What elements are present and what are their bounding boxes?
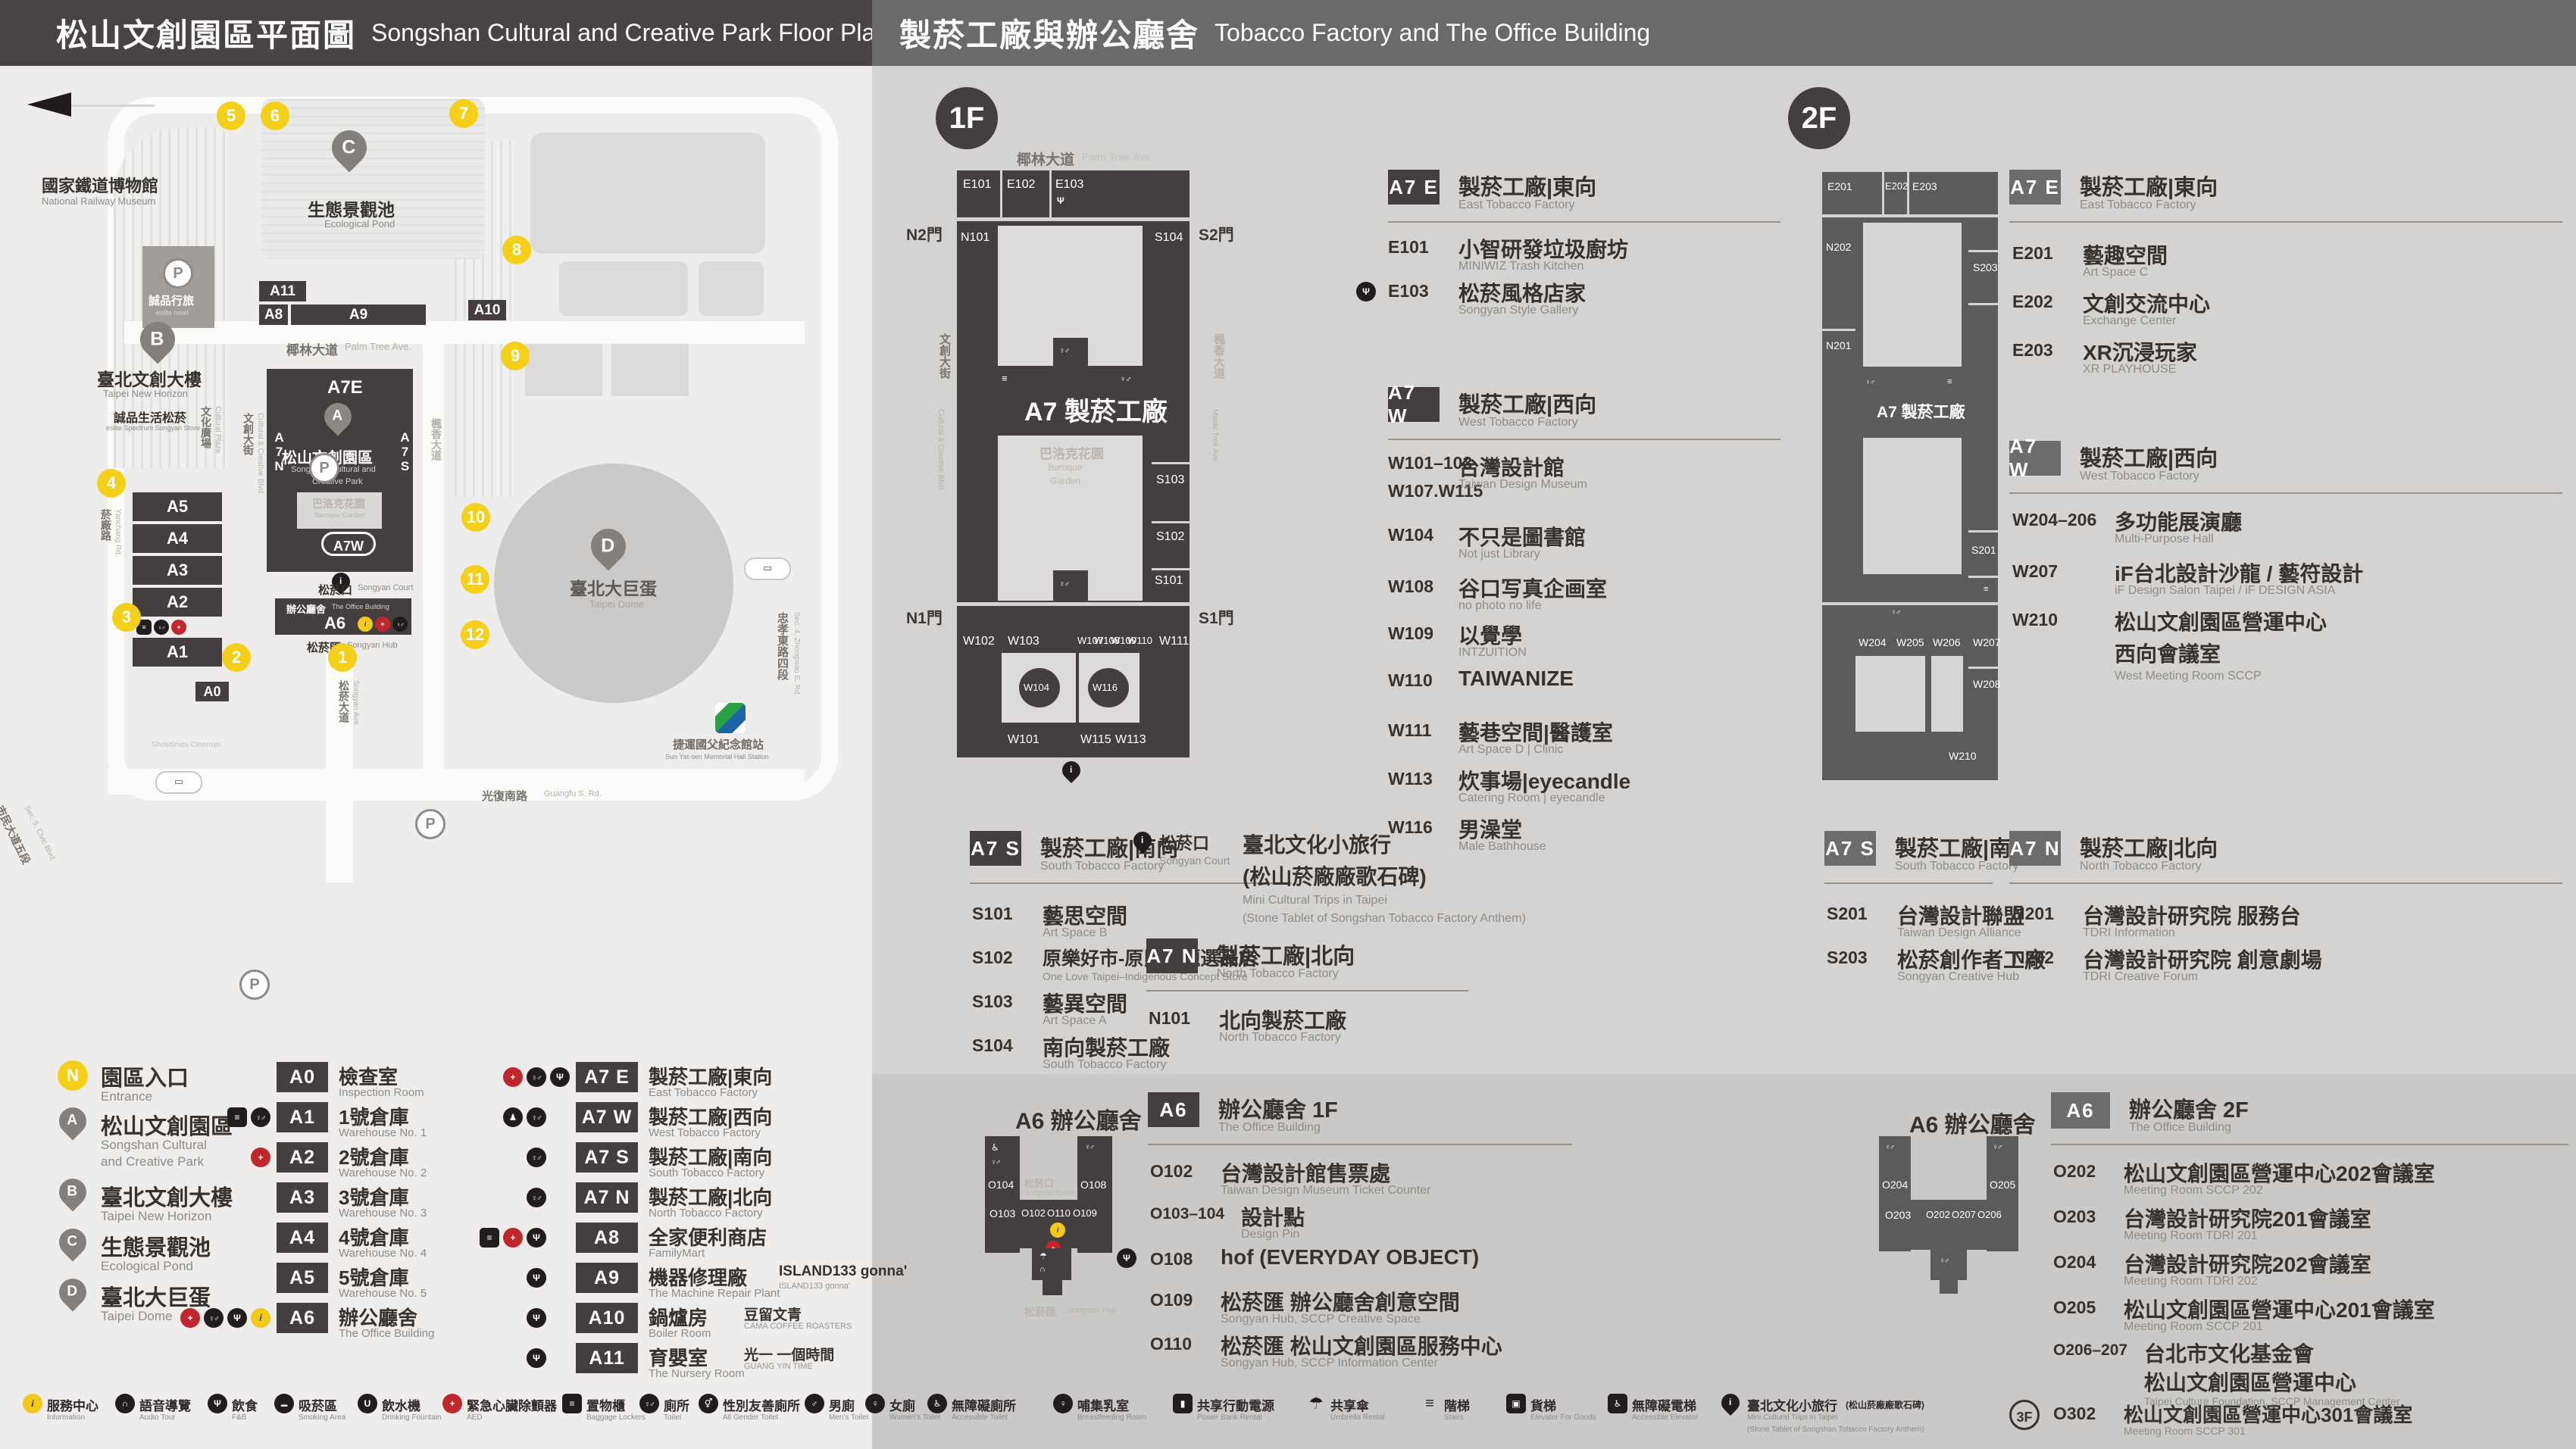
room-label: O110 xyxy=(1047,1207,1071,1219)
umbrella-icon xyxy=(1306,1394,1326,1413)
aed-icon xyxy=(171,620,186,635)
metro-logo xyxy=(715,703,746,733)
toilet-icon xyxy=(639,1394,659,1413)
room-code: O109 xyxy=(1150,1290,1193,1310)
room-code: O204 xyxy=(2053,1252,2096,1273)
facility-label: 廁所 xyxy=(664,1395,689,1414)
legend-a9-brand: ISLAND133 gonna' xyxy=(779,1263,907,1280)
room-name-zh1: 台北市文化基金會 xyxy=(2144,1338,2314,1368)
legend-a7s-en: South Tobacco Factory xyxy=(649,1166,764,1179)
facility-label: 吸菸區 xyxy=(299,1395,337,1414)
entrance-11: 11 xyxy=(461,565,489,594)
eslite-hotel-label-zh: 誠品行旅 xyxy=(148,292,194,308)
pin-a-letter: A xyxy=(324,403,351,429)
room-code: E203 xyxy=(2012,340,2053,361)
f1-street-top-en: Palm Tree Ave. xyxy=(1082,151,1154,163)
zhongxiao-rd-label-en: Sec. 4, Zhongxiao E. Rd. xyxy=(792,612,801,696)
section-code-box: A7 N xyxy=(1146,938,1198,973)
floor3-badge: 3F xyxy=(2009,1400,2040,1430)
facility-label-en: Stairs xyxy=(1444,1413,1464,1422)
parking-icon: P xyxy=(309,453,339,483)
section-title-en: The Office Building xyxy=(1218,1121,1321,1135)
legend-new-horizon-zh: 臺北文創大樓 xyxy=(101,1180,233,1212)
room-label: O202 xyxy=(1926,1209,1950,1220)
room-label: N202 xyxy=(1826,241,1851,253)
room-name-zh: 松山文創園區營運中心202會議室 xyxy=(2124,1157,2435,1188)
room-name-en: Songyan Creative Hub xyxy=(1897,970,2019,984)
facility-label-en: Breastfeeding Room xyxy=(1077,1413,1146,1422)
legend-pin-b-letter: B xyxy=(58,1179,86,1204)
room-code: W204–206 xyxy=(2012,510,2096,530)
section-title-zh: 製菸工廠|北向 xyxy=(2080,831,2218,863)
facility-label: 語音導覽 xyxy=(139,1395,191,1414)
a7s-map-label: A7S xyxy=(397,430,412,473)
showtimes-label-en: Showtimes Cinemas xyxy=(152,741,220,749)
room-label: W101 xyxy=(1008,733,1039,747)
room-label: S101 xyxy=(1155,574,1183,588)
f2-divider xyxy=(1968,303,1998,305)
maple-tree-avenue-road xyxy=(423,337,444,773)
a7n-map-label: A7N xyxy=(271,430,286,473)
room-code: W108 xyxy=(1388,576,1433,597)
f1-a6-stem xyxy=(1032,1248,1071,1280)
room-name-zh: 小智研發垃圾廚坊 xyxy=(1458,233,1628,264)
room-code: O110 xyxy=(1150,1334,1192,1354)
room-label: N201 xyxy=(1826,339,1851,351)
fnb-icon xyxy=(1356,282,1376,301)
cultural-plaza-label-en: Cultural Plaza xyxy=(214,406,222,453)
f1-street-right-zh: 楓香大道 xyxy=(1211,333,1227,379)
room-label: O205 xyxy=(1990,1179,2015,1191)
legend-a5-box: A5 xyxy=(277,1263,328,1293)
facility-label-en: Information xyxy=(47,1413,85,1422)
drinking-fountain-icon xyxy=(358,1394,377,1413)
entrance-3: 3 xyxy=(112,603,141,632)
songyan-hub-label-en: Songyan Hub xyxy=(347,641,398,650)
f1-corridor-line xyxy=(957,217,1190,221)
room-name-en: Art Space C xyxy=(2083,266,2148,279)
f2-west-court1 xyxy=(1855,656,1925,732)
section-title-zh: 辦公廳舍 2F xyxy=(2129,1092,2249,1124)
pond-label-en: Ecological Pond xyxy=(324,218,395,230)
office-bar-a6: A6 xyxy=(324,614,345,633)
dome-label-zh: 臺北大巨蛋 xyxy=(570,574,657,600)
toilet-icon xyxy=(527,1148,546,1167)
room-code: W207 xyxy=(2012,561,2058,582)
room-code: O205 xyxy=(2053,1298,2096,1318)
facility-label-en: Mini Cultural Trips in Taipei xyxy=(1747,1413,1837,1422)
mrt-station-label-en: Sun Yat-sen Memorial Hall Station xyxy=(665,753,769,760)
f2-west-court2 xyxy=(1931,656,1963,732)
fnb-icon xyxy=(527,1308,546,1328)
facility-label-en: Women's Toilet xyxy=(889,1413,940,1422)
facility-label: 緊急心臟除顫器 xyxy=(467,1395,557,1414)
facility-label: 共享行動電源 xyxy=(1197,1395,1274,1414)
court-en: Songyan Court xyxy=(1159,854,1230,867)
songyan-ave-label-en: Songyan Ave. xyxy=(352,680,360,727)
legend-pin-a-letter: A xyxy=(58,1107,86,1133)
f1-a6-court-en: Songyan Court xyxy=(1024,1189,1075,1198)
section-rule xyxy=(1824,882,1993,884)
facility-label: 置物櫃 xyxy=(586,1395,625,1414)
toilet-icon xyxy=(1865,377,1874,386)
section-title-en: West Tobacco Factory xyxy=(2080,470,2199,483)
section-code-box: A7 N xyxy=(2009,831,2061,866)
f1-door-n2: N2門 xyxy=(906,223,943,245)
room-label: O203 xyxy=(1885,1209,1911,1221)
section-code-box: A7 S xyxy=(1824,831,1876,866)
block-a11: A11 xyxy=(259,281,306,301)
facility-label-zh2: (松山菸廠廠歌石碑) xyxy=(1846,1398,1924,1411)
header-factory: 製菸工廠與辦公廳舍 Tobacco Factory and The Office… xyxy=(872,0,2576,66)
room-label: S104 xyxy=(1155,231,1183,245)
court-name2: (松山菸廠廠歌石碑) xyxy=(1243,860,1427,891)
room-label: W210 xyxy=(1949,750,1977,762)
room-code: O202 xyxy=(2053,1161,2096,1182)
room-label: W115 xyxy=(1080,733,1111,747)
legend-a1-en: Warehouse No. 1 xyxy=(339,1126,427,1139)
room-code: W210 xyxy=(2012,610,2058,630)
yanchang-rd-label-en: Yanchang Rd. xyxy=(114,509,122,557)
f1-upper-toilet-tab xyxy=(1053,338,1088,366)
facility-label-en: Elevator For Goods xyxy=(1530,1413,1596,1422)
section-rule xyxy=(1388,221,1780,223)
new-horizon-label-en: Taipei New Horizon xyxy=(103,388,188,399)
legend-pond-en: Ecological Pond xyxy=(101,1259,193,1274)
legend-a11-box: A11 xyxy=(576,1343,638,1373)
room-name-en: TDRI Creative Forum xyxy=(2083,970,2198,984)
locker-icon xyxy=(1002,373,1008,384)
room-name-zh: 不只是圖書館 xyxy=(1458,521,1586,551)
ecological-pond-area xyxy=(261,98,485,259)
facility-label-en: Accessible Toilet xyxy=(952,1413,1008,1422)
f1-street-top-zh: 椰林大道 xyxy=(1017,148,1074,169)
court-en2: (Stone Tablet of Songshan Tobacco Factor… xyxy=(1243,912,1526,926)
locker-icon xyxy=(227,1107,247,1127)
room-name-zh: 文創交流中心 xyxy=(2083,288,2210,318)
section-rule xyxy=(2009,882,2562,884)
section-code-box: A7 E xyxy=(2009,170,2061,205)
entrance-5: 5 xyxy=(217,101,245,130)
room-label: O108 xyxy=(1080,1179,1106,1191)
legend-a7s-box: A7 S xyxy=(576,1142,638,1173)
f2-a6-stem-tab xyxy=(1940,1280,1958,1294)
entrance-8: 8 xyxy=(502,236,531,264)
room-code: N201 xyxy=(2012,904,2054,924)
facility-label-en: Drinking Fountain xyxy=(382,1413,441,1422)
legend-a10-brand-en: CAMA COFFEE ROASTERS xyxy=(744,1322,852,1331)
f1-a6-hub-en: Songyan Hub xyxy=(1067,1306,1118,1315)
room-code: W104 xyxy=(1388,525,1433,545)
zhongxiao-rd-label-zh: 忠孝東路四段 xyxy=(774,612,790,680)
room-label: W116 xyxy=(1093,682,1118,693)
palm-tree-avenue-road xyxy=(124,321,805,344)
songyan-ave-label-zh: 松菸大道 xyxy=(336,680,352,723)
legend-a7e-en: East Tobacco Factory xyxy=(649,1086,758,1099)
room-name-en: Meeting Room TDRI 202 xyxy=(2124,1275,2258,1288)
legend-a9-en: The Machine Repair Plant xyxy=(649,1287,780,1300)
eslite-spectrum-label-zh: 誠品生活松菸 xyxy=(114,408,186,426)
header-factory-title-zh: 製菸工廠與辦公廳舍 xyxy=(899,10,1199,56)
legend-a7e-box: A7 E xyxy=(576,1062,638,1092)
room-label: S201 xyxy=(1971,544,1996,556)
room-label: O206 xyxy=(1977,1209,2002,1220)
room-name-en: Male Bathhouse xyxy=(1458,840,1546,854)
legend-park-en1: Songshan Cultural xyxy=(101,1138,207,1153)
f1-divider xyxy=(1000,170,1002,217)
f2-divider xyxy=(1968,576,1998,578)
section-title-zh: 製菸工廠|西向 xyxy=(2080,441,2218,473)
toilet-icon xyxy=(991,1157,1000,1166)
railway-museum-label-zh: 國家鐵道博物館 xyxy=(42,173,158,197)
room-name-en: Art Space B xyxy=(1043,926,1107,940)
room-label: E203 xyxy=(1912,180,1937,192)
section-rule xyxy=(2051,1144,2568,1145)
room-label: E101 xyxy=(963,178,991,192)
baroque-garden-label-en: Baroque Garden xyxy=(314,511,365,519)
legend-pin-c-letter: C xyxy=(58,1229,86,1254)
room-name-en: Multi-Purpose Hall xyxy=(2115,532,2214,546)
toilet-icon xyxy=(1120,373,1131,384)
room-label: W206 xyxy=(1933,636,1961,648)
f2-divider xyxy=(1882,172,1884,214)
umbrella-icon xyxy=(1039,1251,1047,1261)
smoking-area-icon xyxy=(274,1394,294,1413)
a7e-map-label: A7E xyxy=(327,377,363,398)
room-code: N101 xyxy=(1149,1008,1190,1029)
room-name-en: Songyan Hub, SCCP Creative Space xyxy=(1221,1313,1421,1326)
room-label: W207 xyxy=(1973,636,2001,648)
guangfu-rd-label-zh: 光復南路 xyxy=(482,788,527,804)
fnb-icon xyxy=(208,1394,227,1413)
floor-plan-poster: 松山文創園區平面圖 Songshan Cultural and Creative… xyxy=(0,0,2576,1449)
court-name1: 臺北文化小旅行 xyxy=(1243,829,1391,859)
room-name-zh: 以覺學 xyxy=(1458,620,1522,650)
pin-d-letter: D xyxy=(590,529,625,562)
section-rule xyxy=(1146,990,1468,992)
section-title-zh: 製菸工廠|東向 xyxy=(1458,170,1596,201)
section-title-en: The Office Building xyxy=(2129,1121,2231,1135)
f1-door-n1: N1門 xyxy=(906,606,943,629)
legend-new-horizon-en: Taipei New Horizon xyxy=(101,1209,211,1224)
facility-label: 臺北文化小旅行 xyxy=(1747,1395,1837,1414)
audio-icon xyxy=(1039,1265,1046,1274)
legend-a10-brand: 豆留文青 xyxy=(744,1304,802,1324)
section-title-en: West Tobacco Factory xyxy=(1458,416,1578,429)
room-name-zh: TAIWANIZE xyxy=(1458,667,1574,691)
facility-label: 飲食 xyxy=(232,1395,258,1414)
pond-label-zh: 生態景觀池 xyxy=(308,195,395,221)
facility-label-en: Accessible Elevator xyxy=(1632,1413,1698,1422)
room-label: N101 xyxy=(961,231,989,245)
header-park-title-zh: 松山文創園區平面圖 xyxy=(56,10,356,56)
office-bar-label-zh: 辦公廳舍 xyxy=(286,601,326,616)
legend-a6-en: The Office Building xyxy=(339,1327,434,1340)
goods-elevator-icon xyxy=(1506,1394,1526,1413)
toilet-icon xyxy=(392,617,408,632)
room-code: W111 xyxy=(1388,720,1432,741)
block-a1: A1 xyxy=(133,638,222,667)
toilet-icon xyxy=(1059,578,1069,589)
information-icon xyxy=(23,1394,42,1413)
accessible-toilet-icon xyxy=(927,1394,947,1413)
room-label: W102 xyxy=(963,635,995,648)
section-rule xyxy=(2009,221,2562,223)
section-rule xyxy=(2009,492,2562,494)
fnb-icon xyxy=(1057,195,1064,206)
legend-a0-en: Inspection Room xyxy=(339,1086,424,1099)
legend-a0-box: A0 xyxy=(277,1062,328,1092)
legend-park-zh: 松山文創園區 xyxy=(101,1109,233,1141)
legend-a11-brand: 光一 一個時間 xyxy=(744,1344,834,1364)
room-name-zh: 台灣設計研究院 服務台 xyxy=(2083,900,2301,930)
legend-a4-box: A4 xyxy=(277,1223,328,1253)
room-name-en: XR PLAYHOUSE xyxy=(2083,363,2176,376)
legend-pin-d-letter: D xyxy=(58,1279,86,1304)
room-name-zh: 松菸匯 辦公廳舍創意空間 xyxy=(1221,1286,1460,1316)
room-name-zh: 男澡堂 xyxy=(1458,814,1522,844)
facility-label-en: F&B xyxy=(232,1413,246,1422)
room-code: W109 xyxy=(1388,623,1433,644)
room-label: O104 xyxy=(988,1179,1014,1191)
f1-street-left-zh: 文創大街 xyxy=(936,333,952,379)
room-label: W111 xyxy=(1159,635,1189,648)
section-title-zh: 製菸工廠|東向 xyxy=(2080,170,2218,201)
room-name-zh1: 松山文創園區營運中心 xyxy=(2115,606,2327,636)
room-label: W205 xyxy=(1896,636,1924,648)
room-code: S103 xyxy=(972,992,1013,1012)
room-name-zh: 台灣設計館 xyxy=(1458,451,1565,482)
mens-toilet-icon xyxy=(805,1394,824,1413)
room-name-zh: 北向製菸工廠 xyxy=(1219,1004,1346,1035)
f1-door-s2: S2門 xyxy=(1199,223,1234,245)
palm-tree-ave-label-en: Palm Tree Ave. xyxy=(345,341,411,352)
court-en1: Mini Cultural Trips in Taipei xyxy=(1243,894,1387,907)
block-a0: A0 xyxy=(195,682,229,701)
room-code: S104 xyxy=(972,1035,1013,1056)
legend-a2-box: A2 xyxy=(277,1142,328,1173)
facility-label-en: All Gender Toilet xyxy=(723,1413,778,1422)
legend-park-en2: and Creative Park xyxy=(101,1154,204,1170)
f1-a6-hub-zh: 松菸匯 xyxy=(1024,1304,1056,1319)
room-label: E102 xyxy=(1007,178,1035,192)
section-title-zh: 製菸工廠|南向 xyxy=(1040,831,1178,863)
aed-icon xyxy=(503,1067,523,1087)
facility-label: 無障礙電梯 xyxy=(1632,1395,1696,1414)
entrance-7: 7 xyxy=(449,99,478,128)
room-code: W110 xyxy=(1388,670,1433,691)
toilet-icon xyxy=(204,1308,224,1328)
facility-label-en: Smoking Area xyxy=(299,1413,345,1422)
room-name-zh: 台灣設計聯盟 xyxy=(1897,900,2024,930)
section-rule xyxy=(1148,1144,1572,1145)
entrance-4: 4 xyxy=(97,469,126,498)
f1-garden-en1: Baroque xyxy=(1048,462,1082,473)
info-icon xyxy=(251,1308,270,1328)
mini-trip-icon xyxy=(503,1107,523,1127)
room-label: S102 xyxy=(1156,530,1184,544)
room-label: W204 xyxy=(1859,636,1887,648)
room-name-en: South Tobacco Factory xyxy=(1043,1058,1166,1072)
mrt-station-label-zh: 捷運國父紀念館站 xyxy=(673,736,764,752)
legend-a5-en: Warehouse No. 5 xyxy=(339,1287,427,1300)
room-code: E201 xyxy=(2012,243,2053,264)
all-gender-toilet-icon xyxy=(699,1394,718,1413)
room-name-en: no photo no life xyxy=(1458,599,1541,613)
facility-label: 共享傘 xyxy=(1330,1395,1369,1414)
railway-museum-label-en: National Railway Museum xyxy=(42,195,155,207)
room-name-en: Meeting Room SCCP 201 xyxy=(2124,1320,2263,1334)
facility-label: 哺集乳室 xyxy=(1077,1395,1129,1414)
pin-b-letter: B xyxy=(139,322,174,355)
room-label: W113 xyxy=(1115,733,1146,747)
room-code: W116 xyxy=(1388,817,1433,838)
f1-street-right-en: Maple Tree Ave. xyxy=(1211,409,1219,464)
guangfu-road xyxy=(108,769,805,795)
palm-tree-ave-label-zh: 椰林大道 xyxy=(286,339,338,358)
room-code: O206–207 xyxy=(2053,1341,2127,1360)
room-name-en: iF Design Salon Taipei / iF DESIGN ASIA xyxy=(2115,584,2335,598)
room-code: O103–104 xyxy=(1150,1205,1224,1223)
legend-a7w-box: A7 W xyxy=(576,1102,638,1132)
f1-a6-title: A6 辦公廳舍 xyxy=(1015,1102,1142,1135)
f2-a6-title: A6 辦公廳舍 xyxy=(1909,1106,2036,1139)
toilet-icon xyxy=(154,620,169,635)
facility-label-en2: (Stone Tablet of Songshan Tobacco Factor… xyxy=(1747,1426,1924,1434)
legend-a11-en: The Nursery Room xyxy=(649,1367,745,1380)
legend-a11-brand-en: GUANG YIN TIME xyxy=(744,1362,813,1371)
legend-a7n-en: North Tobacco Factory xyxy=(649,1207,763,1219)
block-a10: A10 xyxy=(468,300,506,320)
f2-divider xyxy=(1907,172,1909,214)
room-name-zh: hof (EVERYDAY OBJECT) xyxy=(1221,1245,1479,1269)
f2-divider xyxy=(1968,250,1998,252)
facility-label: 飲水機 xyxy=(382,1395,420,1414)
legend-entrance-zh: 園區入口 xyxy=(101,1060,189,1092)
f1-divider xyxy=(1049,170,1052,217)
room-name-en: INTZUITION xyxy=(1458,646,1527,660)
floor1-badge: 1F xyxy=(936,87,998,149)
facility-label-en: Toilet xyxy=(664,1413,681,1422)
legend-a10-en: Boiler Room xyxy=(649,1327,711,1340)
room-label: O204 xyxy=(1882,1179,1908,1191)
aed-icon xyxy=(180,1308,200,1328)
room-name-en: Design Pin xyxy=(1241,1228,1299,1241)
section-title-en: South Tobacco Factory xyxy=(1895,860,2018,873)
room-label: E201 xyxy=(1827,180,1852,192)
facility-label: 性別友善廁所 xyxy=(723,1395,800,1414)
locker-icon xyxy=(1984,585,1988,594)
entrance-10: 10 xyxy=(461,503,490,532)
fnb-icon xyxy=(550,1067,570,1087)
room-name-en: Art Space A xyxy=(1043,1014,1107,1028)
pin-c-letter: C xyxy=(331,130,366,164)
section-title-zh: 製菸工廠|西向 xyxy=(1458,387,1596,419)
room-code: E103 xyxy=(1388,281,1429,301)
room-code: O102 xyxy=(1150,1161,1193,1182)
f2-corridor-line xyxy=(1822,214,1998,217)
fnb-icon xyxy=(1117,1248,1136,1268)
room-code: S203 xyxy=(1827,948,1868,968)
legend-dome-zh: 臺北大巨蛋 xyxy=(101,1280,211,1312)
room-label: E103 xyxy=(1055,178,1083,192)
f1-a6-court-zh: 松菸口 xyxy=(1024,1176,1054,1190)
section-title-en: East Tobacco Factory xyxy=(2080,198,2196,212)
room-label: O109 xyxy=(1073,1207,1097,1219)
new-horizon-label-zh: 臺北文創大樓 xyxy=(97,365,202,391)
room-name-en: North Tobacco Factory xyxy=(1219,1031,1341,1045)
facility-label: 貨梯 xyxy=(1530,1395,1556,1414)
